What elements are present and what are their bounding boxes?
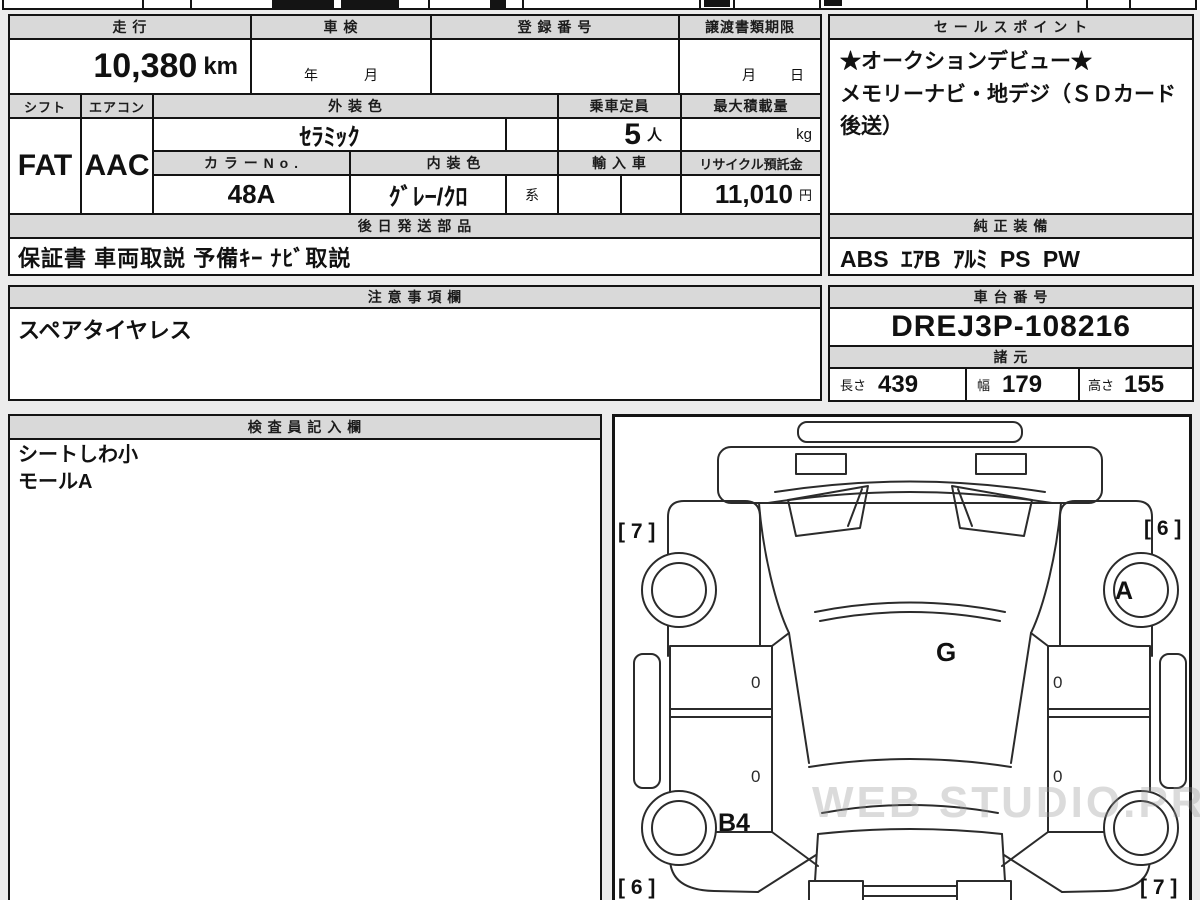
genuine-equipment-header: 純 正 装 備 [828, 213, 1194, 239]
deadline-header: 譲渡書類期限 [678, 14, 822, 40]
specs-header: 諸 元 [828, 345, 1194, 369]
door-handle-mark: 0 [751, 673, 760, 692]
recycle-deposit-value: 11,010 円 [680, 174, 822, 215]
shift-header: シフト [8, 93, 82, 119]
capacity-header: 乗車定員 [557, 93, 682, 119]
max-load-value: kg [680, 117, 822, 152]
aircon-header: エアコン [80, 93, 154, 119]
recycle-deposit-header: リサイクル預託金 [680, 150, 822, 176]
side-sill-right [1160, 654, 1186, 788]
interior-color-kei: 系 [505, 174, 559, 215]
wheel-rear-left [642, 791, 716, 865]
cutoff-row [0, 0, 1200, 10]
registration-header: 登 録 番 号 [430, 14, 680, 40]
sales-points-body: ★オークションデビュー★ メモリーナビ・地デジ（ＳＤカード後送） [828, 38, 1194, 215]
auction-sheet: 走 行 車 検 登 録 番 号 譲渡書類期限 10,380 km 年 月 月 日… [0, 0, 1200, 900]
chassis-no-value: DREJ3P-108216 [828, 307, 1194, 347]
hood [718, 447, 1102, 503]
notes-header: 注 意 事 項 欄 [8, 285, 822, 309]
door-handle-mark: 0 [1053, 767, 1062, 786]
exterior-color-value: ｾﾗﾐｯｸ [152, 117, 507, 152]
chassis-no-header: 車 台 番 号 [828, 285, 1194, 309]
interior-color-header: 内 装 色 [349, 150, 559, 176]
inspector-notes-header: 検 査 員 記 入 欄 [8, 414, 602, 440]
inspector-note-line: シートしわ小 [18, 442, 600, 469]
color-no-value: 48A [152, 174, 351, 215]
door-handle-mark: 0 [1053, 673, 1062, 692]
tail-light-left [809, 881, 863, 900]
import-car-value-right [620, 174, 682, 215]
grade-rear-left: [ 6 ] [618, 876, 655, 899]
mileage-value: 10,380 km [8, 38, 252, 95]
sales-points-header: セ ー ル ス ポ イ ン ト [828, 14, 1194, 40]
color-no-header: カ ラ ー N o . [152, 150, 351, 176]
inspector-note-line: モールA [18, 469, 600, 496]
deadline-value: 月 日 [678, 38, 822, 95]
inspection-value: 年 月 [250, 38, 432, 95]
cutoff-text-fragment [824, 0, 842, 6]
shift-value: FAT [8, 117, 82, 215]
registration-value [430, 38, 680, 95]
mark-front-right-wheel: A [1115, 577, 1133, 605]
grade-front-right: [ 6 ] [1144, 517, 1181, 540]
wheel-front-left [642, 553, 716, 627]
car-top-view-diagram: 0 0 0 0 [ 7 ] [ 6 ] A G B4 [ 6 ] [ 7 ] [612, 414, 1192, 900]
interior-color-value: ｸﾞﾚｰ/ｸﾛ [349, 174, 507, 215]
shipped-later-parts-value: 保証書 車両取説 予備ｷｰ ﾅﾋﾞ取説 [8, 237, 822, 276]
shipped-later-parts-header: 後 日 発 送 部 品 [8, 213, 822, 239]
spec-width-cell: 幅 179 [965, 367, 1080, 402]
mileage-header: 走 行 [8, 14, 252, 40]
grade-rear-right: [ 7 ] [1140, 876, 1177, 899]
notes-body: スペアタイヤレス [8, 307, 822, 401]
wheel-rear-right [1104, 791, 1178, 865]
inspection-header: 車 検 [250, 14, 432, 40]
exterior-color-header: 外 装 色 [152, 93, 559, 119]
sales-point-line: ★オークションデビュー★ [840, 46, 1182, 79]
sales-point-line: メモリーナビ・地デジ（ＳＤカード後送） [840, 79, 1182, 144]
mark-floor-g: G [936, 637, 956, 667]
spec-length-cell: 長さ 439 [828, 367, 967, 402]
door-handle-mark: 0 [751, 767, 760, 786]
spec-height-cell: 高さ 155 [1078, 367, 1194, 402]
genuine-equipment-value: ABS ｴｱB ｱﾙﾐ PS PW [828, 237, 1194, 276]
cutoff-text-fragment [704, 0, 730, 7]
grade-front-left: [ 7 ] [618, 520, 655, 543]
mark-rear-quarter-b4: B4 [718, 809, 750, 837]
inspector-notes-body: シートしわ小 モールA [8, 438, 602, 900]
aircon-value: AAC [80, 117, 154, 215]
tail-light-right [957, 881, 1011, 900]
exterior-color-sub-cell [505, 117, 559, 152]
side-sill-left [634, 654, 660, 788]
import-car-header: 輸 入 車 [557, 150, 682, 176]
capacity-value: 5 人 [557, 117, 682, 152]
import-car-value-left [557, 174, 622, 215]
max-load-header: 最大積載量 [680, 93, 822, 119]
front-bumper [798, 422, 1022, 442]
cutoff-text-fragment [341, 0, 399, 8]
